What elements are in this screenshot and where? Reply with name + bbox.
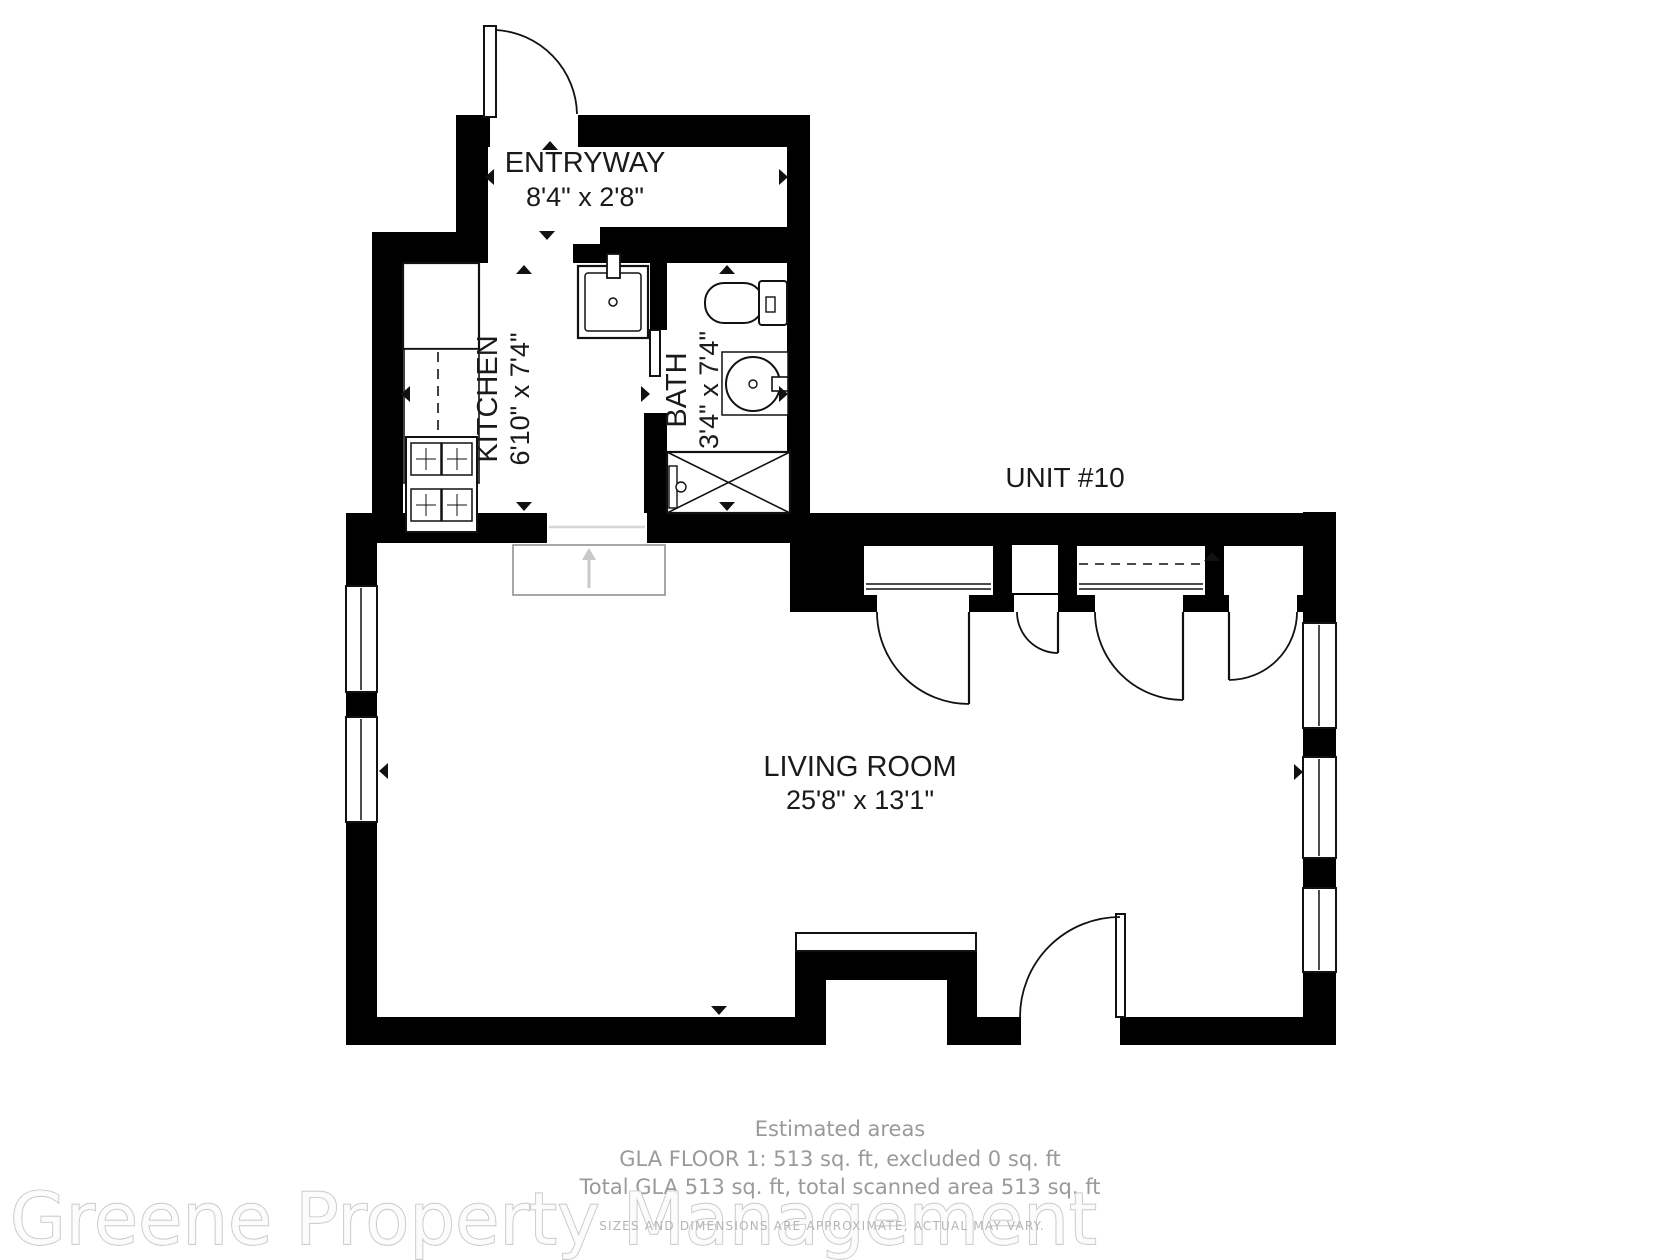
closet1-door-arc <box>877 612 969 704</box>
room-label-bath: BATH <box>661 352 693 427</box>
closet2-door-arc <box>1095 612 1183 700</box>
room-label-kitchen: KITCHEN <box>472 335 504 462</box>
room-dim-bath: 3'4" x 7'4" <box>694 331 724 449</box>
room-dim-living-room: 25'8" x 13'1" <box>786 785 934 815</box>
floorplan-page: ENTRYWAY 8'4" x 2'8" KITCHEN 6'10" x 7'4… <box>0 0 1680 1260</box>
disclaimer-text: SIZES AND DIMENSIONS ARE APPROXIMATE, AC… <box>599 1219 1045 1233</box>
patio-door-arc <box>1020 917 1120 1017</box>
niche-door-arc <box>1017 612 1058 653</box>
entry-door-arc <box>496 30 577 114</box>
patio-door-leaf <box>1116 914 1125 1017</box>
closet3-door-arc <box>1229 612 1297 680</box>
bath-pocket-door <box>650 330 660 376</box>
entry-door <box>484 26 577 117</box>
room-label-living-room: LIVING ROOM <box>763 751 956 783</box>
room-dim-kitchen: 6'10" x 7'4" <box>505 332 535 465</box>
room-dim-entryway: 8'4" x 2'8" <box>526 182 644 212</box>
floor-plan: ENTRYWAY 8'4" x 2'8" KITCHEN 6'10" x 7'4… <box>0 0 1680 1260</box>
interior-doors <box>650 330 1297 1017</box>
toilet-bowl <box>705 283 763 323</box>
entry-door-leaf <box>484 26 496 117</box>
fridge <box>403 263 479 349</box>
room-label-entryway: ENTRYWAY <box>505 147 666 179</box>
unit-label: UNIT #10 <box>1005 462 1124 493</box>
fireplace-shelf <box>796 933 976 951</box>
estimated-areas-title: Estimated areas <box>755 1117 926 1141</box>
sink-faucet <box>607 254 620 278</box>
gla-floor-line: GLA FLOOR 1: 513 sq. ft, excluded 0 sq. … <box>619 1147 1060 1171</box>
